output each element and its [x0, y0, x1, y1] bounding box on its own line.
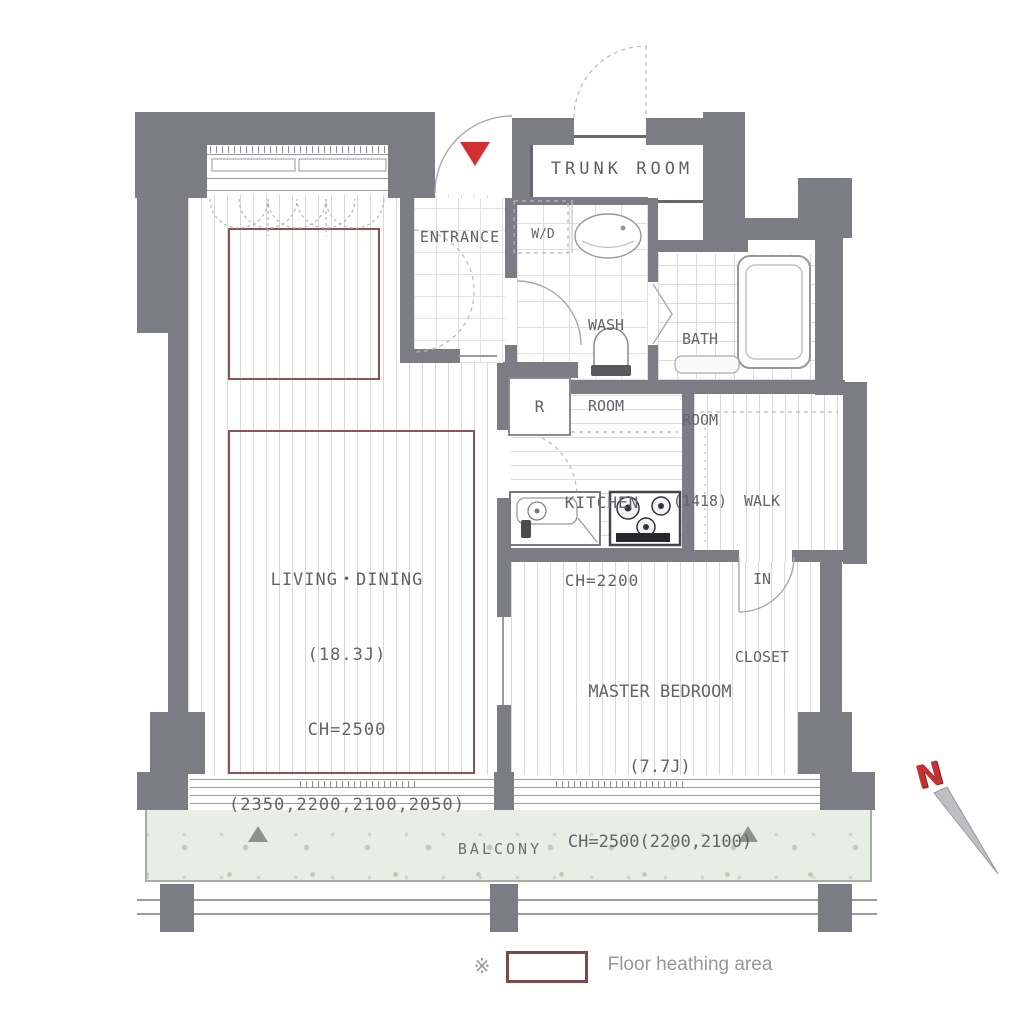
- trunk-room-label: TRUNK ROOM: [551, 159, 693, 179]
- balcony-pillar: [818, 884, 852, 932]
- entrance-label: ENTRANCE: [420, 228, 500, 246]
- balcony-label: BALCONY: [458, 840, 542, 858]
- wall-segment: [798, 178, 852, 238]
- entrance-marker-icon: [460, 142, 490, 166]
- wall-segment: [388, 112, 435, 198]
- refrigerator-label: R: [509, 378, 570, 435]
- floor-plan: TRUNK ROOM: [0, 0, 1024, 1024]
- floor-heating-area-1: [228, 228, 380, 380]
- washer-dryer-label: W/D: [531, 227, 554, 242]
- legend-heating-swatch: [506, 951, 588, 983]
- wall-segment: [150, 712, 205, 774]
- legend-heating-label: Floor heathing area: [608, 954, 773, 976]
- wall-segment: [503, 362, 578, 378]
- window-sash: [299, 159, 386, 171]
- wall-segment: [792, 550, 843, 562]
- window-sash: [212, 159, 295, 171]
- north-label: N: [912, 753, 948, 797]
- kitchen-label: KITCHEN CH=2200: [565, 438, 639, 646]
- window-rail-line: [207, 154, 388, 155]
- wall-segment: [505, 198, 517, 278]
- wall-segment: [400, 349, 460, 363]
- entrance-floor: [414, 198, 505, 363]
- window-hatch: [210, 146, 386, 153]
- wall-segment: [512, 140, 530, 198]
- wall-segment: [646, 118, 706, 145]
- balcony-pillar: [160, 884, 194, 932]
- balcony-pillar: [490, 884, 518, 932]
- trunk-room: TRUNK ROOM: [530, 135, 714, 203]
- wall-segment: [703, 112, 745, 240]
- wall-segment: [512, 197, 648, 205]
- living-dining-label: LIVING・DINING (18.3J) CH=2500 (2350,2200…: [229, 518, 465, 868]
- wall-segment: [820, 772, 875, 810]
- wall-segment: [137, 198, 170, 333]
- wall-segment: [815, 233, 843, 393]
- wall-segment: [798, 712, 852, 774]
- wall-segment: [494, 772, 514, 810]
- wall-segment: [497, 498, 511, 562]
- wall-segment: [497, 562, 511, 617]
- trunk-door-swing: [574, 46, 646, 118]
- window-rail-line: [207, 190, 388, 191]
- bath-room-label: BATH ROOM (1418): [673, 272, 727, 569]
- legend-marker: ※: [474, 954, 491, 979]
- wall-segment: [400, 195, 414, 355]
- wall-segment: [843, 390, 867, 564]
- wall-segment: [137, 772, 188, 810]
- wall-segment: [168, 195, 188, 775]
- window-rail-line: [207, 178, 388, 179]
- wall-segment: [497, 705, 511, 775]
- north-needle: [934, 787, 998, 874]
- master-bedroom-label: MASTER BEDROOM (7.7J) CH=2500(2200,2100): [568, 630, 752, 905]
- wall-segment: [648, 240, 748, 252]
